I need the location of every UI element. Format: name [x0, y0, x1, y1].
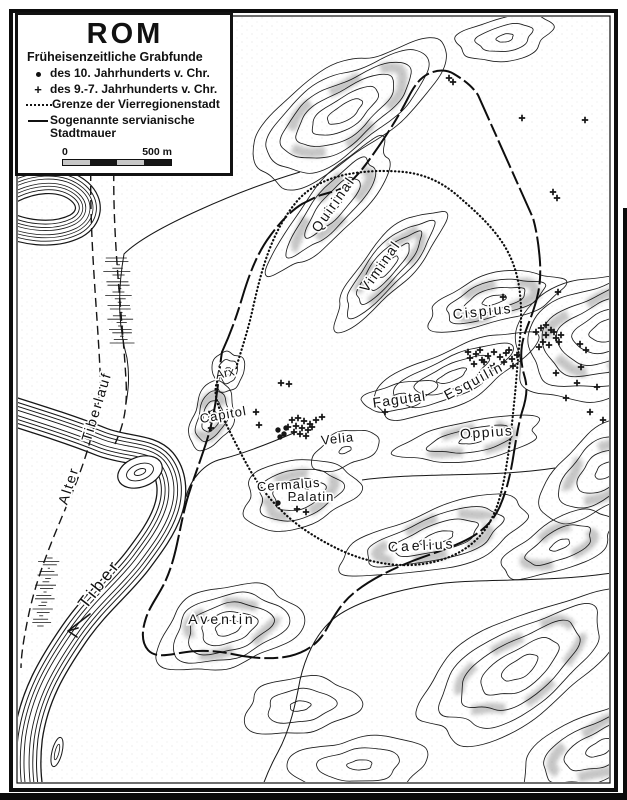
scan-edge-bottom: [0, 793, 627, 800]
legend-item-label: des 9.-7. Jahrhunderts v. Chr.: [50, 83, 217, 96]
solid-line-icon: [26, 115, 50, 127]
grave-find-dot-10th-century: [275, 500, 280, 505]
legend-item-servian-wall: Sogenannte servianische Stadtmauer: [26, 114, 224, 141]
legend-item-label: des 10. Jahrhunderts v. Chr.: [50, 67, 210, 80]
legend-item-10th-century: des 10. Jahrhunderts v. Chr.: [26, 67, 224, 80]
scale-bar: 0 500 m: [62, 146, 172, 166]
scale-start-label: 0: [62, 146, 68, 158]
legend-item-label: Grenze der Vierregionenstadt: [52, 98, 220, 111]
map-page: QuirinalViminalCispiusEsquilinFagutalOpp…: [0, 0, 627, 800]
scale-bar-graphic: [62, 159, 172, 166]
dot-marker-icon: [26, 68, 50, 80]
place-label-palatin: Palatin: [288, 489, 335, 504]
scale-end-label: 500 m: [142, 146, 172, 158]
legend-item-label: Sogenannte servianische Stadtmauer: [50, 114, 224, 141]
map-title: ROM: [26, 19, 224, 49]
grave-find-dot-10th-century: [275, 427, 280, 432]
legend-item-9-7-century: + des 9.-7. Jahrhunderts v. Chr.: [26, 83, 224, 96]
cross-marker-icon: +: [26, 84, 50, 96]
scan-edge-right: [623, 208, 627, 800]
legend-item-four-region-boundary: Grenze der Vierregionenstadt: [26, 98, 224, 111]
legend-heading: Früheisenzeitliche Grabfunde: [27, 51, 224, 65]
place-label-aventin: Aventin: [188, 611, 255, 627]
dotted-line-icon: [26, 99, 52, 111]
grave-find-dot-10th-century: [277, 434, 282, 439]
legend-box: ROM Früheisenzeitliche Grabfunde des 10.…: [15, 12, 233, 176]
